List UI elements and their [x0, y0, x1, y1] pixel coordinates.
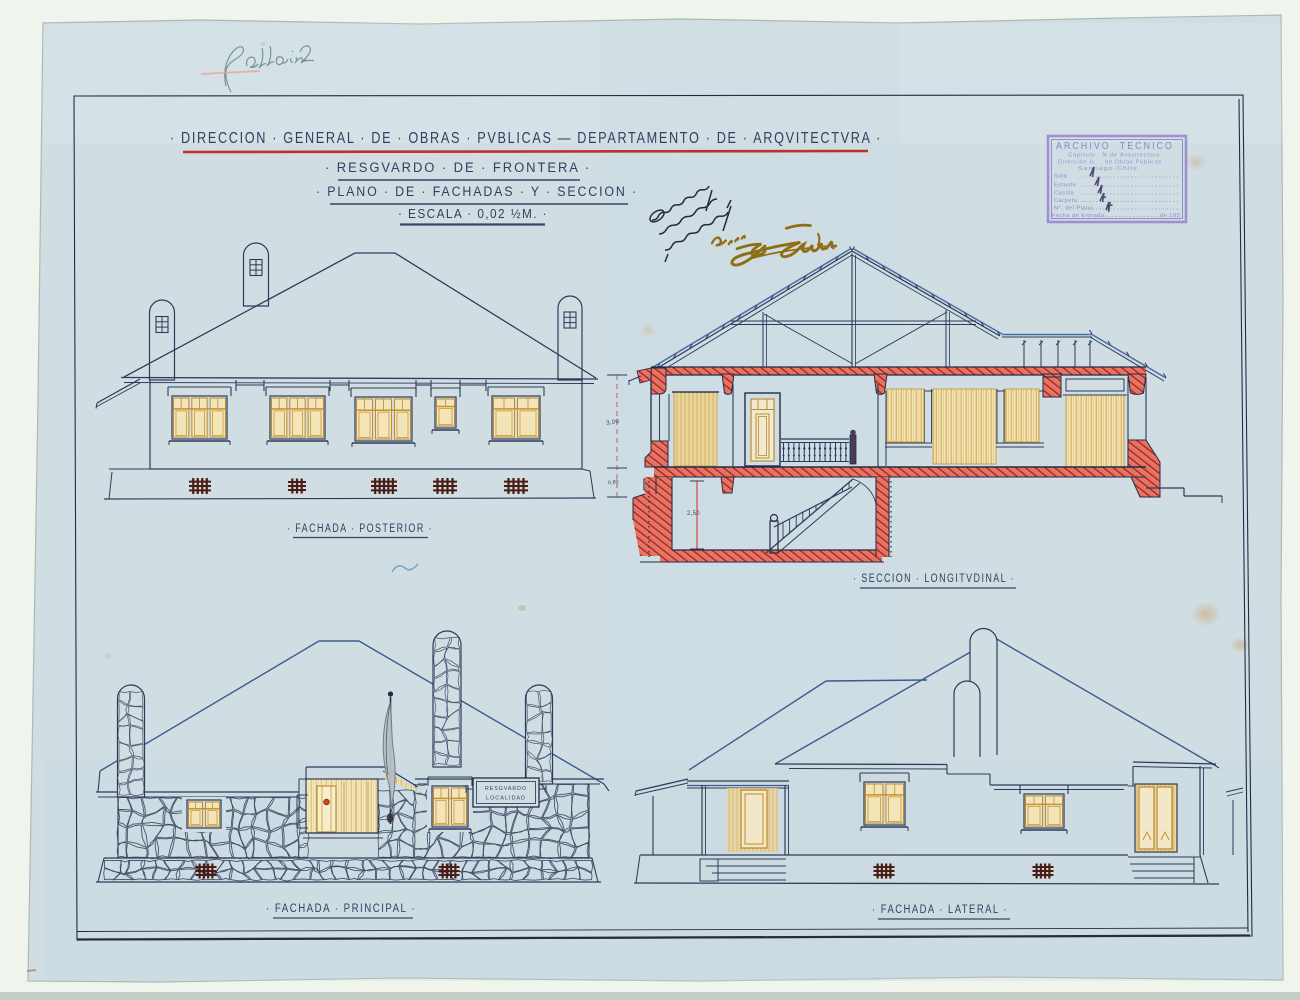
- svg-text:· SECCION · LONGITVDINAL ·: · SECCION · LONGITVDINAL ·: [853, 573, 1015, 585]
- svg-text:Fecha de Entrada: Fecha de Entrada: [1052, 213, 1105, 219]
- svg-text:Dirección G. de Obras Públi: Dirección G. de Obras Públicas: [1058, 160, 1162, 166]
- svg-text:2,50: 2,50: [687, 511, 700, 517]
- svg-text:Capítulo N de Arquitectura: Capítulo N de Arquitectura: [1068, 153, 1160, 159]
- svg-text:· RESGVARDO · DE · FRONTERA ·: · RESGVARDO · DE · FRONTERA ·: [325, 160, 591, 175]
- svg-text:LOCALIDAD: LOCALIDAD: [486, 796, 526, 802]
- svg-text:N°. del Plano: N°. del Plano: [1054, 206, 1093, 212]
- svg-text:de 193: de 193: [1160, 213, 1180, 219]
- svg-text:· FACHADA · PRINCIPAL ·: · FACHADA · PRINCIPAL ·: [266, 903, 416, 915]
- svg-text:Carpeta: Carpeta: [1054, 198, 1078, 204]
- svg-text:· FACHADA · LATERAL ·: · FACHADA · LATERAL ·: [872, 904, 1008, 916]
- svg-text:Sala: Sala: [1054, 174, 1068, 180]
- svg-text:· PLANO · DE · FACHADAS · Y ·: · PLANO · DE · FACHADAS · Y · SECCION ·: [316, 184, 638, 199]
- svg-text:· ESCALA · 0,02 ½M. ·: · ESCALA · 0,02 ½M. ·: [398, 207, 548, 221]
- svg-text:Estante: Estante: [1054, 183, 1076, 189]
- svg-text:RESGVARDO: RESGVARDO: [485, 786, 527, 792]
- svg-text:ARCHIVO TECNICO: ARCHIVO TECNICO: [1056, 140, 1174, 152]
- svg-text:· DIRECCION · GENERAL · DE · O: · DIRECCION · GENERAL · DE · OBRAS · PVB…: [170, 130, 882, 147]
- svg-text:Santiago-Chile: Santiago-Chile: [1078, 166, 1138, 172]
- svg-text:Casilla: Casilla: [1054, 191, 1075, 197]
- svg-text:· FACHADA · POSTERIOR ·: · FACHADA · POSTERIOR ·: [287, 523, 433, 535]
